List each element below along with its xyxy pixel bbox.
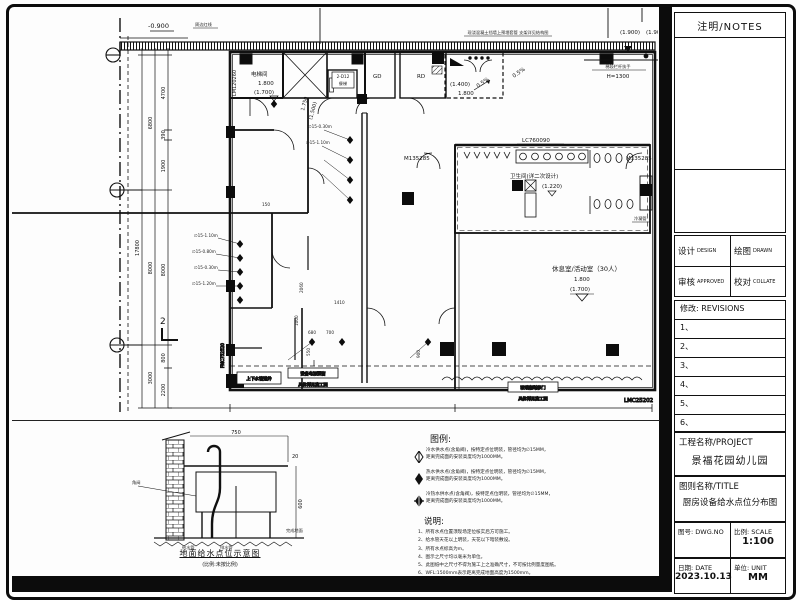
date-value: 2023.10.13 [675, 572, 730, 582]
drawing-sheet: 17800 6800 8000 3000 4700 390 1900 8000 … [0, 0, 800, 600]
boundary-line-label: 周边红线 [195, 21, 213, 28]
slope-label-2: 0.5% [512, 67, 527, 80]
drawing-title: 厨房设备给水点位分布图 [675, 496, 785, 508]
level-1900b-label: (1.900) [646, 30, 658, 36]
level-1900-label: (1.900) [620, 30, 640, 36]
dim-550: 550 [306, 348, 311, 356]
revision-row: 5、 [675, 395, 785, 414]
platform-level-label: (1.400) [450, 82, 470, 88]
collate-en: COLLATE [753, 279, 775, 285]
legend-item-text: 热水供水点(含角阀)，按特定点位明装，管径均为∅15MM， [426, 470, 548, 477]
window-code-lc760090: LC760090 [522, 138, 550, 144]
legend-item-text: 冷热水供水点(含角阀)，按特定点位明装，管径均为∅15MM， [426, 492, 553, 499]
top-rooms [230, 52, 613, 116]
handrail-note: 梯段栏杆扶手 H=1300 [584, 60, 658, 80]
approved-cell: 审核APPROVED [675, 267, 731, 296]
legend-item-text: 距离完成面的安装高度均为1000MM。 [426, 477, 548, 484]
revisions-table: 修改: REVISIONS 1、 2、 3、 4、 5、 6、 [674, 300, 786, 432]
date-unit-row: 日期: DATE 2023.10.13 单位: UNIT MM [674, 558, 786, 594]
gd-room-label: GD [373, 74, 382, 80]
note-line: 2、给水管天花以上明装，天花以下暗装敷设。 [418, 537, 664, 545]
design-label: 设计 [678, 245, 695, 257]
revision-row: 6、 [675, 414, 785, 433]
elevator-level-label: 1.800 [258, 81, 274, 87]
legend-item: 热水供水点(含角阀)，按特定点位明装，管径均为∅15MM， 距离完成面的安装高度… [412, 470, 664, 489]
dim-2200: 2200 [161, 384, 167, 397]
date-cell: 日期: DATE 2023.10.13 [675, 559, 731, 593]
legend-item: 冷水供水点(含角阀)，按特定点位明装，管径均为∅15MM， 距离完成面的安装高度… [412, 448, 664, 467]
scale-cell: 比例: SCALE 1:100 [731, 523, 785, 557]
svg-text:设备电源预留: 设备电源预留 [300, 370, 325, 377]
dim-900: 900 [416, 350, 421, 358]
door-code-fmc752520: FMC752520 [220, 343, 225, 368]
rest-level2-label: (1.700) [570, 287, 590, 293]
dwgno-scale-row: 图号: DWG.NO 比例: SCALE 1:100 [674, 522, 786, 558]
drawing-title-label: 图则名称/TITLE [675, 477, 785, 492]
note-line: 5、此图纸中之尺寸不得为施工上之准确尺寸，不可按比例量度图纸。 [418, 562, 664, 570]
dimension-chain-left: 17800 6800 8000 3000 4700 390 1900 8000 … [135, 48, 172, 408]
legend-title: 图例: [430, 432, 664, 445]
legend-item: 冷热水供水点(含角阀)，按特定点位明装，管径均为∅15MM， 距离完成面的安装高… [412, 492, 664, 511]
glass-partition-tag: 玻璃隔断移门 具体详见施工图 [508, 382, 558, 402]
water-point-label-4: ∅15-1.20m [192, 281, 216, 286]
dwgno-cell: 图号: DWG.NO [675, 523, 731, 557]
detail-sink [138, 436, 304, 546]
section-marker: 2 [160, 317, 178, 340]
drawn-label: 绘图 [734, 245, 751, 257]
floor-water-point-detail: 角阀 排水管 给水管 完成地面 750 600 20 [128, 428, 318, 553]
dim-1500: (1.500) [308, 101, 319, 120]
notes-empty-area-1 [674, 37, 786, 170]
notes-header: 注明/NOTES [697, 18, 763, 33]
platform-labels: (1.400) 1.800 0.5% 0.5% [450, 67, 527, 97]
note-line: 3、所有水点标高为m。 [418, 546, 664, 554]
drawn-en: DRAWN [753, 248, 772, 254]
detail-dim-20: 20 [292, 454, 298, 460]
svg-text:上下水管道井: 上下水管道井 [246, 375, 271, 382]
building-outer-walls [230, 52, 655, 390]
collate-cell: 校对COLLATE [731, 267, 785, 296]
svg-text:玻璃隔断移门: 玻璃隔断移门 [520, 384, 545, 391]
retaining-wall-hatched [120, 38, 655, 50]
unit-cell: 单位: UNIT MM [731, 559, 785, 593]
date-label: 日期: DATE [675, 559, 730, 572]
drawn-cell: 绘图DRAWN [731, 236, 785, 267]
plan-bottom-divider [12, 420, 660, 421]
detail-wall [162, 432, 190, 540]
svg-text:具体详见施工图: 具体详见施工图 [518, 395, 547, 402]
level-minus-0900: -0.900 [148, 22, 169, 30]
water-point-label-5: ∅15-0.30m [308, 124, 332, 129]
title-block: 注明/NOTES 设计DESIGN 绘图DRAWN 审核APPROVED 校对C… [672, 8, 790, 592]
detail-subcaption: (比例:未按比例) [130, 561, 310, 568]
door-code-m135285-left: M135285 [404, 156, 430, 162]
legend-item-text: 冷水供水点(含角阀)，按特定点位明装，管径均为∅15MM， [426, 448, 548, 455]
notes-title: 说明: [424, 515, 664, 527]
dim-2060: 2060 [299, 282, 304, 293]
rd-room-label: RD [417, 74, 425, 80]
water-point-label-2: ∅15-0.80m [192, 249, 216, 254]
dim-700: 700 [326, 330, 334, 335]
door-code-m135285-right: M135285 [626, 156, 652, 162]
elevator-level2-label: (1.700) [254, 90, 274, 96]
water-point-label-6: ∅15-1.10m [306, 140, 330, 145]
window-code-lmc25202: LMC25202 [624, 398, 653, 404]
site-boundary-lines [120, 8, 642, 412]
notes-header-cell: 注明/NOTES [674, 12, 786, 38]
approved-label: 审核 [678, 276, 695, 288]
revision-row: 3、 [675, 357, 785, 376]
svg-text:2-D12: 2-D12 [337, 74, 350, 79]
hot-water-point-icon [412, 470, 426, 489]
angle-valve-label: 角阀 [132, 479, 140, 486]
rest-level-label: 1.800 [574, 277, 590, 283]
dim-680: 680 [308, 330, 316, 335]
note-line: 6、WFL:1500mm表示距离完成地面高度为1500mm。 [418, 570, 664, 578]
dim-8000b: 8000 [161, 264, 167, 277]
pipe-shaft-tag: 上下水管道井 [237, 372, 281, 384]
scale-label: 比例: SCALE [731, 523, 785, 536]
dim-8000: 8000 [148, 262, 154, 275]
revision-row: 2、 [675, 338, 785, 357]
notes-list: 1、所有水点位置须现场定位核实后方可施工。 2、给水管天花以上明装，天花以下暗装… [418, 529, 664, 579]
detail-dim-750: 750 [231, 430, 241, 436]
legend-item-text: 距离完成面的安装高度均为1000MM。 [426, 499, 553, 506]
revision-row: 4、 [675, 376, 785, 395]
rest-room-label: 休息室/活动室（30人） [552, 264, 621, 273]
door-code-lm120260: LM120260 [232, 70, 238, 96]
cold-water-point-icon [412, 448, 426, 467]
water-points: ∅15-1.10m ∅15-0.80m ∅15-0.30m ∅15-1.20m … [192, 100, 431, 360]
wc-block [417, 145, 652, 233]
rest-room-labels: 休息室/活动室（30人） 1.800 (1.700) [552, 264, 621, 301]
note-line: 4、图示之尺寸均以毫米为单位。 [418, 554, 664, 562]
dim-4700: 4700 [161, 87, 167, 100]
platform-level2-label: 1.800 [458, 91, 474, 97]
dwgno-label: 图号: DWG.NO [678, 526, 724, 536]
revision-row: 1、 [675, 319, 785, 338]
floor-label: 完成地面 [286, 527, 303, 534]
scale-value: 1:100 [731, 536, 785, 547]
detail-dim-600: 600 [298, 499, 304, 509]
design-cell: 设计DESIGN [675, 236, 731, 267]
dim-800: 800 [161, 353, 167, 363]
dumbwaiter-tag: 2-D12 餐梯 [332, 72, 354, 88]
elevator-room-label: 电梯间 [251, 70, 268, 78]
dim-390: 390 [161, 130, 167, 140]
water-point-label-3: ∅15-0.30m [194, 265, 218, 270]
dim-3000: 3000 [148, 372, 154, 385]
svg-text:梯段栏杆扶手: 梯段栏杆扶手 [605, 63, 630, 70]
retaining-wall-note: 现浇混凝土挡墙上预埋套管 支架详见结构图 [468, 29, 549, 36]
design-en: DESIGN [697, 248, 716, 254]
unit-label: 单位: UNIT [731, 559, 785, 572]
drawing-title-cell: 图则名称/TITLE 厨房设备给水点位分布图 [674, 476, 786, 522]
condensate-pipe-label: 冷凝管 [634, 215, 647, 222]
grid-axis-bubbles [106, 48, 142, 352]
legend-item-text: 距离完成面的安装高度均为1000MM。 [426, 455, 548, 462]
dim-1000: 1000 [294, 315, 299, 326]
wc-room-label: 卫生间(详二次设计) [510, 172, 558, 180]
water-point-label-1: ∅15-1.10m [194, 233, 218, 238]
detail-caption-block: 地面给水点位示意图 (比例:未按比例) [130, 548, 310, 568]
hot-cold-water-point-icon [412, 492, 426, 511]
svg-text:餐梯: 餐梯 [339, 80, 347, 87]
unit-value: MM [731, 572, 785, 583]
floor-plan: 17800 6800 8000 3000 4700 390 1900 8000 … [12, 8, 658, 420]
dim-1900: 1900 [161, 160, 167, 173]
approved-en: APPROVED [697, 279, 724, 285]
dim-150: 150 [262, 202, 270, 207]
wc-level-label: (1.220) [542, 184, 562, 190]
svg-text:H=1300: H=1300 [607, 74, 630, 80]
dim-17800: 17800 [135, 240, 141, 256]
revisions-header: 修改: REVISIONS [675, 301, 785, 319]
dim-6800: 6800 [148, 117, 154, 130]
collate-label: 校对 [734, 276, 751, 288]
detail-caption: 地面给水点位示意图 [130, 548, 310, 559]
dim-1410: 1410 [334, 300, 345, 305]
plan-bottom-strip: 上下水管道井 设备电源预留 具体详见施工图 玻璃隔断移门 具体详见施工图 LMC… [168, 343, 653, 412]
legend-block: 图例: 冷水供水点(含角阀)，按特定点位明装，管径均为∅15MM， 距离完成面的… [412, 430, 664, 579]
project-cell: 工程名称/PROJECT 景福花园幼儿园 [674, 432, 786, 476]
svg-text:具体详见施工图: 具体详见施工图 [298, 381, 327, 388]
sign-table: 设计DESIGN 绘图DRAWN 审核APPROVED 校对COLLATE [674, 235, 786, 297]
svg-text:2: 2 [160, 317, 166, 327]
notes-empty-area-2 [674, 169, 786, 233]
note-line: 1、所有水点位置须现场定位核实后方可施工。 [418, 529, 664, 537]
project-name: 景福花园幼儿园 [675, 452, 785, 467]
project-label: 工程名称/PROJECT [675, 433, 785, 448]
power-reserve-tag: 设备电源预留 具体详见施工图 [288, 360, 338, 388]
